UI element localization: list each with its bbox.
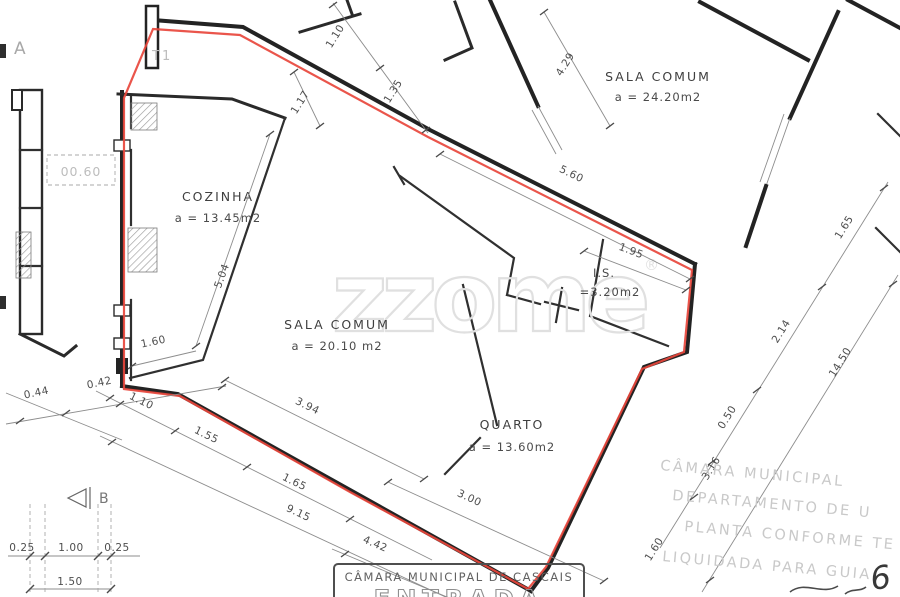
dim-corner-1-00: 1.00 (58, 542, 83, 554)
watermark-registered-icon: ® (644, 256, 659, 274)
municipal-stamp-faded: CÂMARA MUNICIPAL DEPARTAMENTO DE U PLANT… (660, 456, 896, 583)
window-symbol (114, 338, 130, 349)
handwritten-number: 6 (868, 557, 893, 597)
room-area-sala1: a = 20.10 m2 (291, 339, 382, 353)
room-area-sala2: a = 24.20m2 (615, 90, 701, 104)
room-name-quarto: QUARTO (480, 417, 545, 432)
section-marker-a: A (14, 39, 26, 59)
room-name-sala1: SALA COMUM (284, 317, 390, 332)
wall-hatch (16, 232, 31, 278)
dim-bottom-9-15: 9.15 (284, 502, 312, 524)
room-name-is: I.S. (593, 266, 615, 280)
dim-right-1-65: 1.65 (833, 213, 857, 241)
dim-top-5-60: 5.60 (557, 163, 585, 185)
dim-corner-0-25-r: 0.25 (104, 542, 129, 554)
dim-sala-3-94: 3.94 (293, 395, 321, 417)
unit-type-label: T1 (151, 49, 172, 64)
floor-plan-drawing: zzome ® COZINHA a = 13.45m2 SALA COMUM a… (0, 0, 900, 597)
room-name-cozinha: COZINHA (182, 189, 254, 204)
room-area-is: =3.20m2 (580, 285, 641, 299)
room-area-cozinha: a = 13.45m2 (175, 211, 261, 225)
dim-top-1-10: 1.10 (324, 22, 348, 50)
dim-corner-1-50: 1.50 (57, 576, 82, 588)
room-name-sala2: SALA COMUM (605, 69, 711, 84)
stamp-line-1: CÂMARA MUNICIPAL (660, 456, 846, 490)
stamp-box-subtitle: ENTRADA (374, 585, 544, 597)
window-symbol (114, 305, 130, 316)
stamp-line-3: PLANTA CONFORME TE (684, 519, 896, 553)
dim-top-1-35: 1.35 (382, 77, 406, 105)
handwriting-squiggle (790, 586, 838, 592)
floor-plan-sheet: zzome ® COZINHA a = 13.45m2 SALA COMUM a… (0, 0, 900, 597)
dim-corner-0-25-l: 0.25 (9, 542, 34, 554)
dim-right-2-14: 2.14 (770, 317, 794, 345)
dim-bottom-4-42: 4.42 (361, 534, 389, 555)
window-symbol (114, 140, 130, 151)
wall-hatch (128, 228, 157, 272)
dim-left-0-42: 0.42 (86, 375, 113, 392)
dim-top-4-29: 4.29 (554, 50, 578, 78)
stamp-line-4: LIQUIDADA PARA GUIA (662, 549, 873, 583)
stamp-line-2: DEPARTAMENTO DE U (672, 488, 873, 521)
door-block (116, 358, 128, 374)
dim-bottom-1-55: 1.55 (192, 424, 220, 446)
room-area-quarto: a = 13.60m2 (469, 440, 555, 454)
exterior-wall-bottom (122, 386, 531, 591)
left-party-wall-column (0, 44, 76, 356)
dim-kitchen-1-60: 1.60 (140, 334, 167, 351)
dim-bottom-1-65: 1.65 (280, 471, 308, 493)
stamp-box-title: CÂMARA MUNICIPAL DE CASCAIS (345, 569, 574, 584)
wall-hatch (131, 103, 157, 130)
exterior-wall-top (153, 20, 695, 264)
handwriting-squiggle (845, 587, 866, 594)
level-box-value: 00.60 (61, 164, 102, 179)
dim-quarto-3-00: 3.00 (455, 487, 483, 509)
section-arrow-icon (68, 489, 86, 507)
section-marker-b: B (99, 491, 109, 507)
dim-right-14-50: 14.50 (827, 345, 854, 379)
dim-left-0-44: 0.44 (23, 385, 50, 402)
